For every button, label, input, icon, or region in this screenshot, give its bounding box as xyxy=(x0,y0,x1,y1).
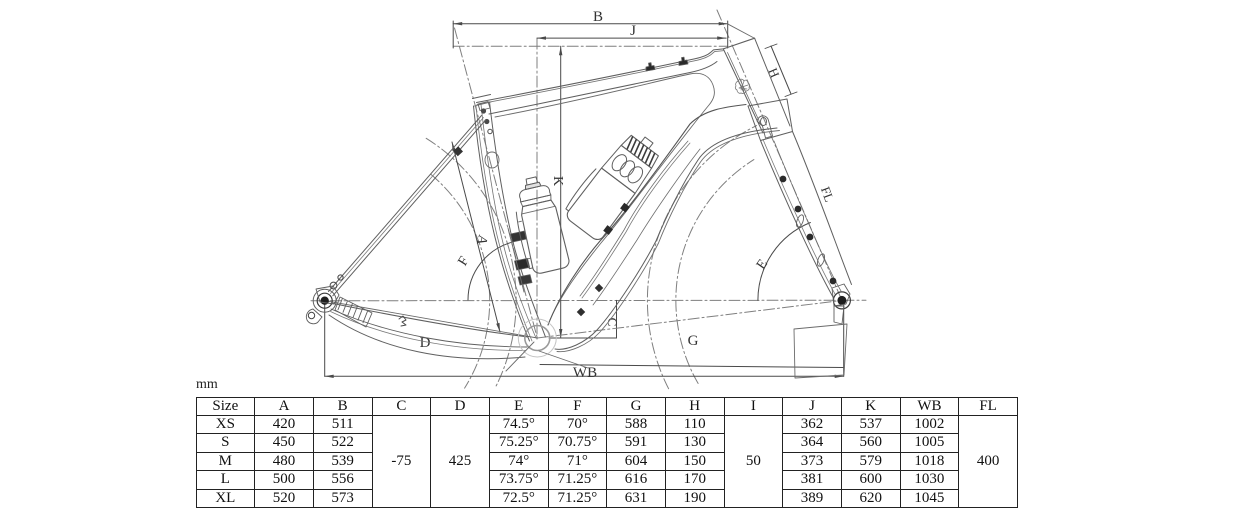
svg-text:FL: FL xyxy=(818,184,837,203)
svg-text:G: G xyxy=(688,333,699,349)
svg-text:C: C xyxy=(605,318,620,327)
svg-text:B: B xyxy=(593,9,603,25)
svg-text:J: J xyxy=(630,23,636,39)
svg-text:K: K xyxy=(550,176,565,186)
svg-text:F: F xyxy=(456,254,473,269)
svg-text:A: A xyxy=(473,233,490,247)
